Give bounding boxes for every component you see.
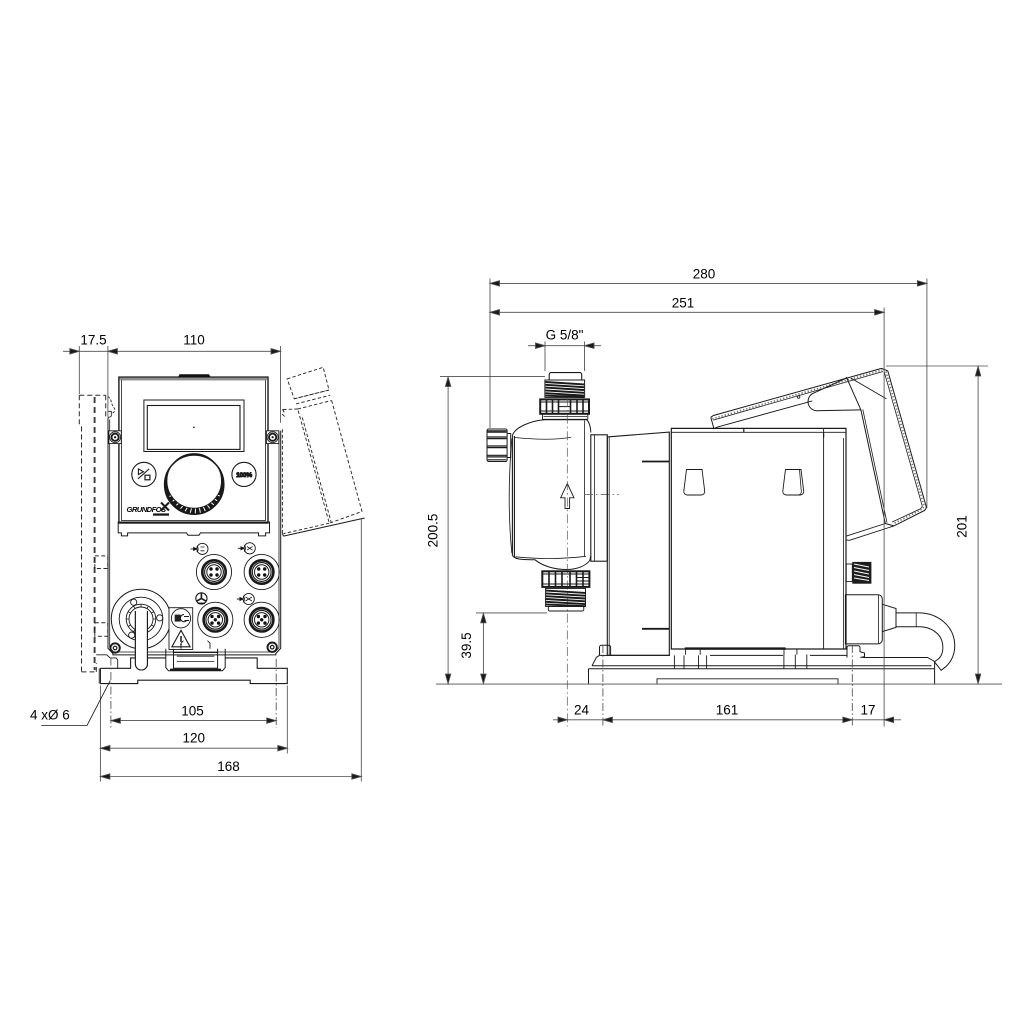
svg-text:168: 168 bbox=[217, 759, 240, 774]
svg-text:24: 24 bbox=[574, 702, 590, 717]
svg-text:120: 120 bbox=[183, 731, 206, 746]
svg-text:110: 110 bbox=[183, 333, 205, 348]
svg-text:G 5/8": G 5/8" bbox=[546, 328, 584, 343]
svg-text:161: 161 bbox=[716, 702, 739, 717]
svg-text:17.5: 17.5 bbox=[80, 333, 106, 348]
svg-text:17: 17 bbox=[860, 702, 875, 717]
svg-text:4 xØ 6: 4 xØ 6 bbox=[30, 708, 70, 723]
svg-text:200.5: 200.5 bbox=[426, 514, 441, 548]
svg-text:251: 251 bbox=[672, 295, 695, 310]
svg-text:100%: 100% bbox=[236, 472, 252, 479]
svg-text:39.5: 39.5 bbox=[459, 632, 474, 658]
svg-text:280: 280 bbox=[693, 267, 716, 282]
svg-text:GRUNDFOS: GRUNDFOS bbox=[127, 505, 167, 514]
svg-text:201: 201 bbox=[955, 515, 970, 538]
svg-text:105: 105 bbox=[181, 703, 204, 718]
